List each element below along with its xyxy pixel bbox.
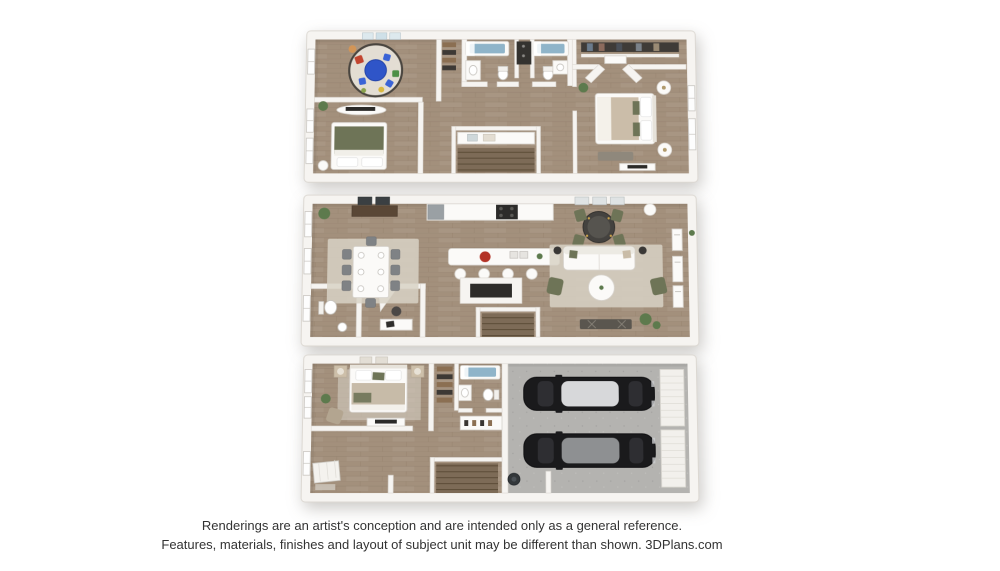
stairs [457,148,534,173]
wall-art [575,197,624,205]
disclaimer: Renderings are an artist's conception an… [161,516,722,554]
bed [331,123,387,170]
tv [346,107,376,111]
fireplace [470,284,512,298]
bench [598,152,634,161]
page-canvas: Renderings are an artist's conception an… [0,0,1000,571]
wall-art [362,33,400,40]
disclaimer-line-2: Features, materials, finishes and layout… [161,535,722,554]
bed [595,93,657,144]
car-1 [524,375,655,413]
nightstand [318,161,328,171]
sink [469,65,477,75]
car-roof [562,438,620,464]
car-roof [561,381,619,406]
upper-floor-plan [303,29,699,184]
stairs [482,313,534,337]
counter [427,204,553,220]
hanging-clothes [581,42,679,52]
shower-curtain [466,41,475,55]
bed [349,365,407,413]
toilet [483,389,493,401]
wall-art [360,357,372,364]
green-chair [392,70,399,77]
fireplace-core [460,278,522,304]
console-table [352,206,398,217]
pedestal-sink [338,323,347,332]
side-table [553,247,561,255]
closet-island [605,56,627,64]
door-mat [315,484,335,490]
toilet [325,300,337,314]
tv [627,165,647,168]
laptop [386,321,395,328]
kitchen-island [448,248,559,265]
ground-floor-plan [300,354,700,503]
plant [578,83,588,93]
laundry-closet [517,41,532,64]
stairwell [457,132,534,172]
leaning-frames [672,229,683,307]
main-floor-plan [300,194,700,347]
sink [461,388,468,397]
entry-console [460,416,502,430]
wall-art [358,197,372,205]
wall-art [376,197,390,205]
kids-playroom [348,44,402,96]
bar-cart [644,204,656,216]
kids-table [365,60,387,81]
sofa [563,247,635,270]
range [496,205,518,220]
desk [380,319,412,330]
stairs [436,463,498,493]
fruit-bowl [480,251,491,262]
lamp [414,368,421,375]
tv [375,420,397,424]
car-2 [524,431,656,469]
refrigerator [428,205,444,220]
media-console [580,319,632,329]
wall-art [376,357,388,364]
disclaimer-line-1: Renderings are an artist's conception an… [161,516,722,535]
sink [510,251,518,258]
